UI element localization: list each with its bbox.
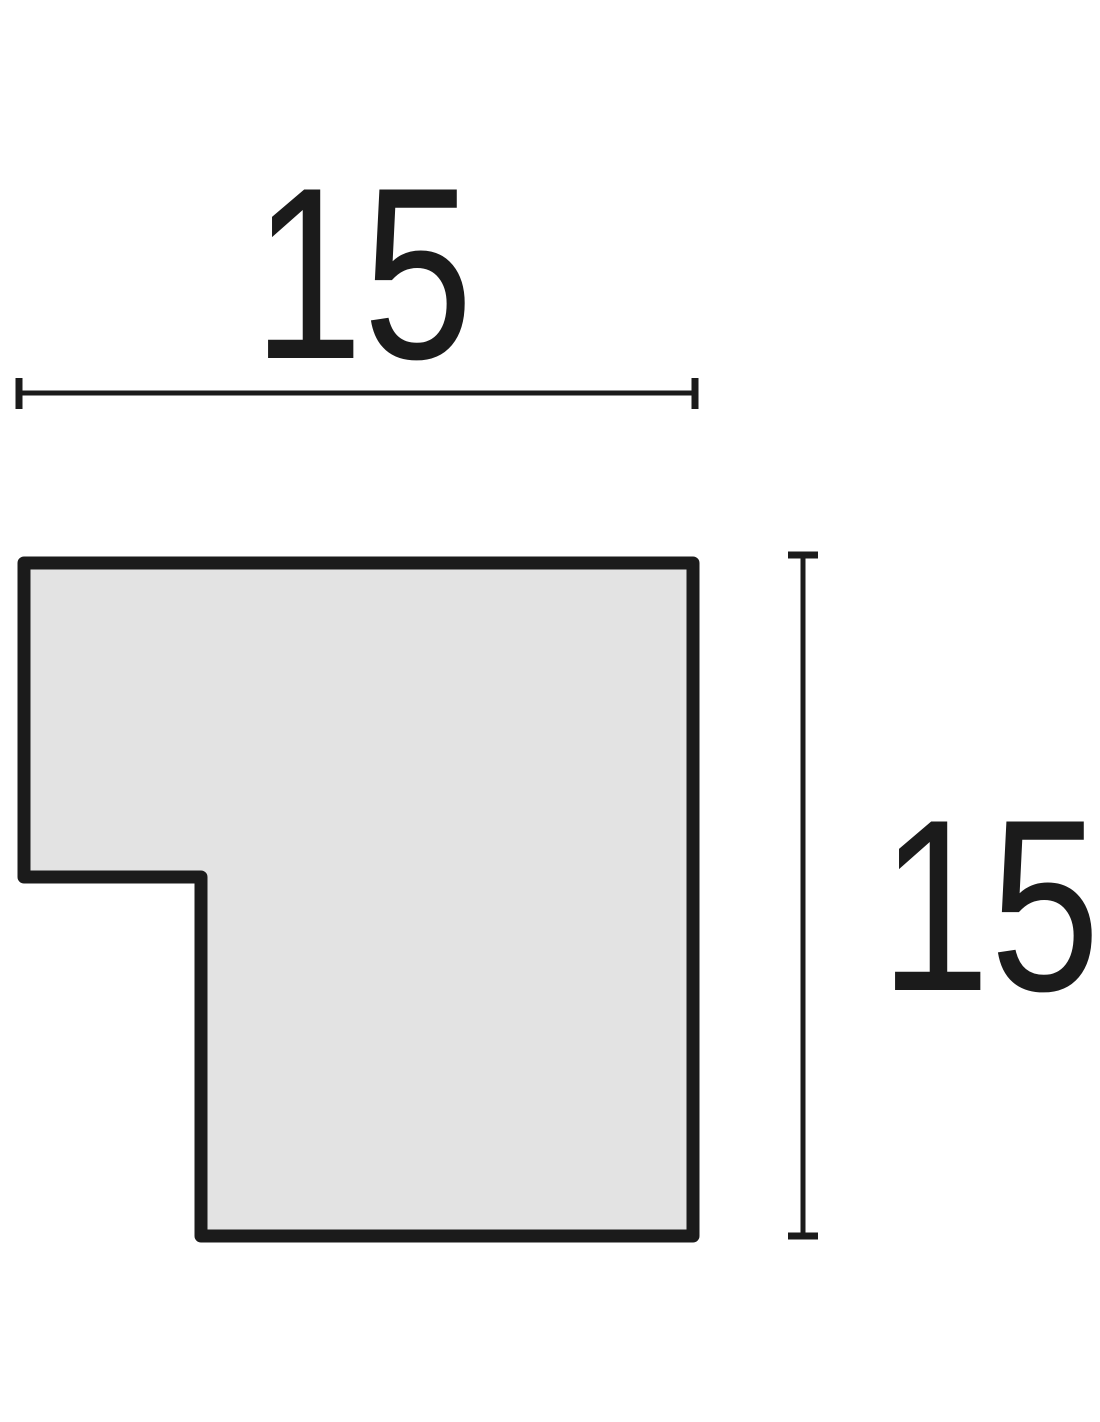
height-dimension-label: 15	[880, 768, 1100, 1042]
profile-shape	[24, 563, 693, 1236]
vertical-dimension: 15	[788, 555, 1100, 1237]
width-dimension-label: 15	[253, 136, 473, 410]
horizontal-dimension: 15	[19, 136, 696, 410]
technical-drawing-canvas: 15 15	[0, 0, 1100, 1422]
profile-diagram: 15 15	[0, 0, 1100, 1422]
